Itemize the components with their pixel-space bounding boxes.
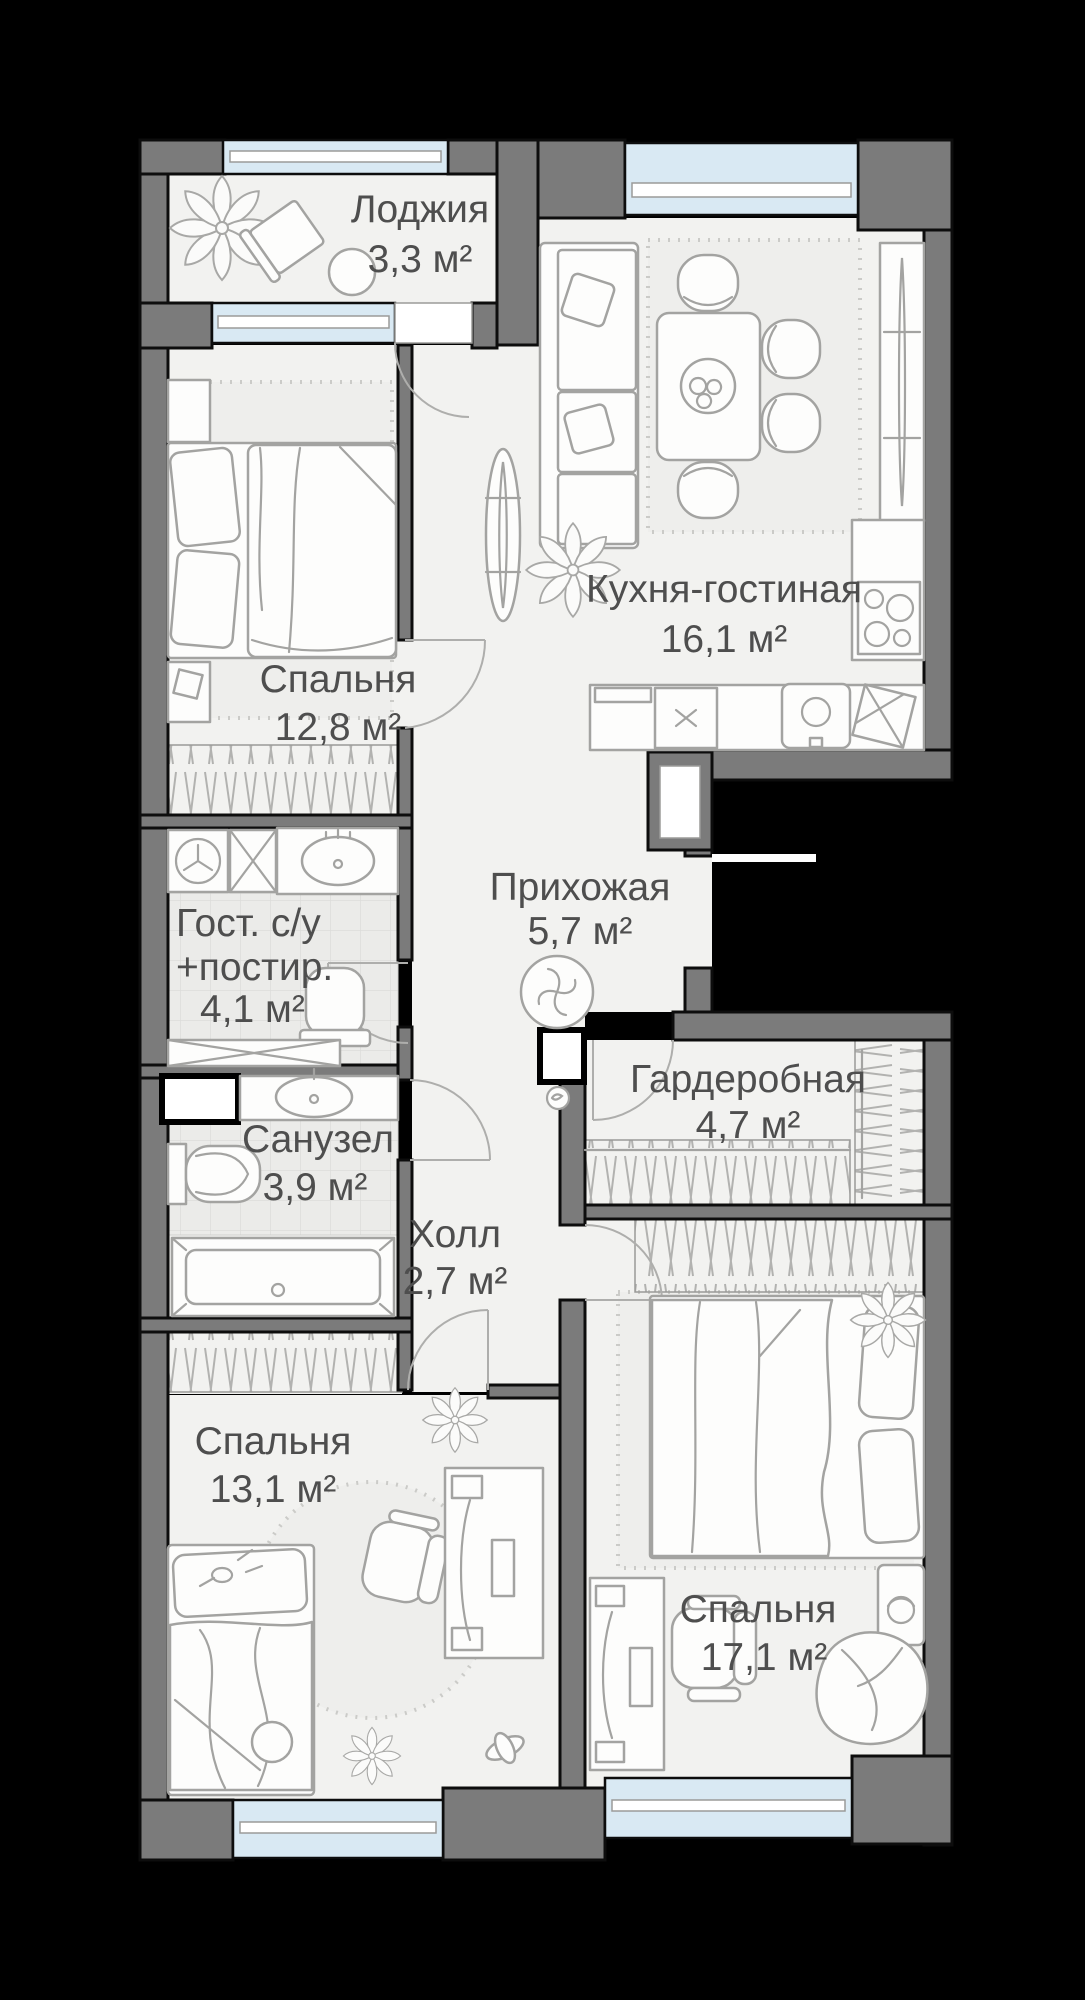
wardrobe-label: Гардеробная (630, 1058, 866, 1101)
nightstand (168, 662, 210, 722)
blanket (652, 1300, 832, 1556)
wall-right-outer (924, 1040, 952, 1845)
wall-left-outer (140, 140, 168, 1860)
hallway-label: Прихожая (490, 866, 671, 909)
counter-drawer (595, 688, 651, 702)
bathroom-niche (162, 1076, 238, 1122)
kitchen-area: 16,1 м² (661, 618, 788, 661)
wardrobe-area: 4,7 м² (696, 1104, 801, 1147)
dining-chair (678, 255, 738, 311)
bed-double (168, 443, 396, 658)
wall-wardrobe-top (673, 1012, 952, 1040)
desk (445, 1468, 543, 1658)
wall-column-a (497, 140, 538, 345)
hall-label: Холл (409, 1213, 501, 1256)
guest-wc-label-2: +постир. (176, 946, 333, 989)
blanket (248, 445, 396, 657)
dishwasher (655, 688, 717, 748)
bedroom3-window-frame (612, 1800, 845, 1811)
bedroom1-label: Спальня (260, 658, 417, 701)
wall-band-stub (140, 303, 212, 348)
dining-chair (762, 394, 820, 452)
blanket (170, 1622, 312, 1790)
nightstand (168, 380, 210, 442)
loggia-window-frame (230, 151, 441, 162)
ceiling-light-icon (521, 956, 593, 1028)
bathroom-label: Санузел (242, 1118, 394, 1161)
bean-bag (817, 1632, 928, 1744)
ironing-board (486, 449, 520, 621)
plant-icon (851, 1283, 926, 1358)
storage-box (168, 1040, 340, 1066)
loggia-area: 3,3 м² (368, 238, 473, 281)
bedroom2-window-frame (240, 1822, 436, 1833)
guest-wc-label-1: Гост. с/у (176, 902, 321, 945)
desk (590, 1578, 664, 1770)
dining-chair (678, 462, 738, 518)
stove (852, 520, 924, 660)
laundry-basket (230, 830, 276, 892)
pillow (169, 447, 240, 547)
stool (252, 1722, 292, 1762)
guest-wc-area: 4,1 м² (200, 988, 305, 1031)
wall-bathroom-bottom (140, 1318, 412, 1332)
kitchen-window (625, 143, 858, 215)
kitchen-label: Кухня-гостиная (586, 568, 862, 611)
wall-bottomleft-corner (140, 1800, 233, 1860)
drying-rack (852, 684, 915, 747)
bed-single (168, 1545, 314, 1795)
bathroom-area: 3,9 м² (263, 1166, 368, 1209)
bedroom2-area: 13,1 м² (210, 1468, 337, 1511)
kitchen-sink (782, 684, 850, 748)
balcony-window-frame (218, 316, 389, 328)
wall-loggia-topleft (140, 140, 225, 174)
wall-wardrobe-bottom (560, 1205, 952, 1219)
wall-guestwc-top (140, 815, 412, 828)
sofa-pillow (563, 403, 614, 454)
plant-icon (343, 1727, 400, 1784)
wall-bottom-pier (443, 1788, 605, 1860)
tall-cabinet (880, 243, 924, 521)
balcony-door (395, 303, 472, 343)
kitchen-window-frame (632, 183, 851, 197)
floor-plan-svg: Лоджия 3,3 м² Кухня-гостиная 16,1 м² Спа… (0, 0, 1085, 2000)
bedroom3-label: Спальня (680, 1588, 837, 1631)
dining-chair (762, 320, 820, 378)
wall-kitchen-top (538, 140, 625, 218)
loggia-label: Лоджия (351, 188, 489, 231)
keyboard (630, 1648, 652, 1706)
wall-partition-lower (560, 1300, 585, 1845)
bedroom3-closet (635, 1218, 924, 1292)
hallway-area: 5,7 м² (528, 910, 633, 953)
bathroom-sink (240, 1069, 398, 1120)
floor-plan: Лоджия 3,3 м² Кухня-гостиная 16,1 м² Спа… (0, 0, 1085, 2000)
bedroom2-closet (168, 1332, 402, 1392)
hall-area: 2,7 м² (403, 1260, 508, 1303)
wall-band-stub-right (472, 303, 497, 348)
pillow (170, 549, 240, 648)
pillow (858, 1428, 920, 1543)
washing-machine (168, 830, 228, 892)
shaft-mark-icon (547, 1087, 569, 1109)
wall-loggia-topright (448, 140, 500, 174)
wall-mid-b (398, 1027, 412, 1080)
wall-kitchen-right (924, 230, 952, 780)
kitchen-counter (590, 684, 924, 750)
sofa (540, 243, 638, 548)
desk-item (596, 1586, 624, 1606)
entrance-door-leaf (712, 854, 816, 862)
bathtub (172, 1238, 394, 1316)
entry-shaft-inner (660, 766, 700, 838)
desk-item (452, 1476, 482, 1498)
guest-wc-sink (277, 828, 398, 894)
ventilation-shaft (540, 1030, 584, 1082)
bedroom1-area: 12,8 м² (275, 706, 402, 749)
wall-mid-a (398, 828, 412, 960)
keyboard (492, 1540, 514, 1596)
plant-icon (423, 1388, 487, 1452)
desk-item (596, 1742, 624, 1762)
wall-bedroom2-top (488, 1385, 560, 1398)
bedroom3-area: 17,1 м² (701, 1636, 828, 1679)
lamp (173, 669, 202, 698)
bedroom2-label: Спальня (195, 1420, 352, 1463)
wall-kitchen-topright (858, 140, 952, 230)
bedroom1-closet (168, 745, 408, 815)
wall-bottomright-corner (852, 1756, 952, 1844)
